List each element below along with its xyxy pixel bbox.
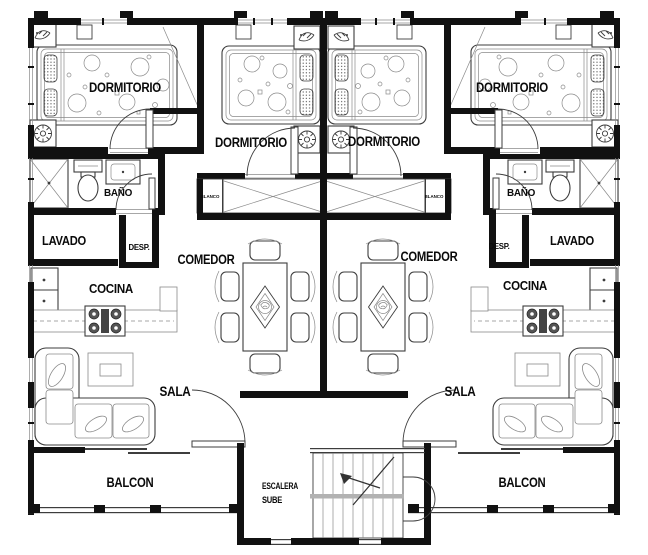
floor-plan-page: DORMITORIO DORMITORIO DORMITORIO DORMITO… bbox=[0, 0, 648, 555]
stair-label-escalera: ESCALERA bbox=[262, 481, 298, 492]
room-label-balcon-left: BALCON bbox=[107, 475, 154, 490]
entry-cap-wall bbox=[240, 391, 408, 398]
right-apartment-unit bbox=[324, 11, 620, 515]
party-wall bbox=[320, 18, 327, 398]
room-label-blanco-right: BLANCO bbox=[425, 194, 444, 199]
room-label-bano-right: BAÑO bbox=[507, 186, 536, 199]
left-apartment-unit bbox=[28, 11, 324, 515]
stair-landing bbox=[310, 494, 404, 499]
room-label-lavado-right: LAVADO bbox=[550, 234, 595, 248]
room-label-dormitorio-3: DORMITORIO bbox=[348, 134, 420, 149]
room-label-dormitorio-2: DORMITORIO bbox=[215, 135, 287, 150]
room-label-balcon-right: BALCON bbox=[499, 475, 546, 490]
floor-plan-canvas: DORMITORIO DORMITORIO DORMITORIO DORMITO… bbox=[0, 0, 648, 555]
room-label-desp-right: DESP. bbox=[489, 242, 510, 251]
room-label-cocina-left: COCINA bbox=[89, 282, 133, 296]
room-label-comedor-left: COMEDOR bbox=[178, 252, 235, 267]
room-label-dormitorio-1: DORMITORIO bbox=[89, 80, 161, 95]
room-label-comedor-right: COMEDOR bbox=[401, 249, 458, 264]
room-label-desp-left: DESP. bbox=[129, 243, 150, 252]
room-label-cocina-right: COCINA bbox=[503, 279, 547, 293]
staircase bbox=[237, 443, 435, 545]
room-label-lavado-left: LAVADO bbox=[42, 234, 87, 248]
stair-label-sube: SUBE bbox=[262, 495, 282, 506]
room-label-blanco-left: BLANCO bbox=[201, 194, 220, 199]
room-label-sala-left: SALA bbox=[160, 384, 191, 399]
room-label-sala-right: SALA bbox=[445, 384, 476, 399]
room-label-bano-left: BAÑO bbox=[104, 186, 133, 199]
room-label-dormitorio-4: DORMITORIO bbox=[476, 80, 548, 95]
